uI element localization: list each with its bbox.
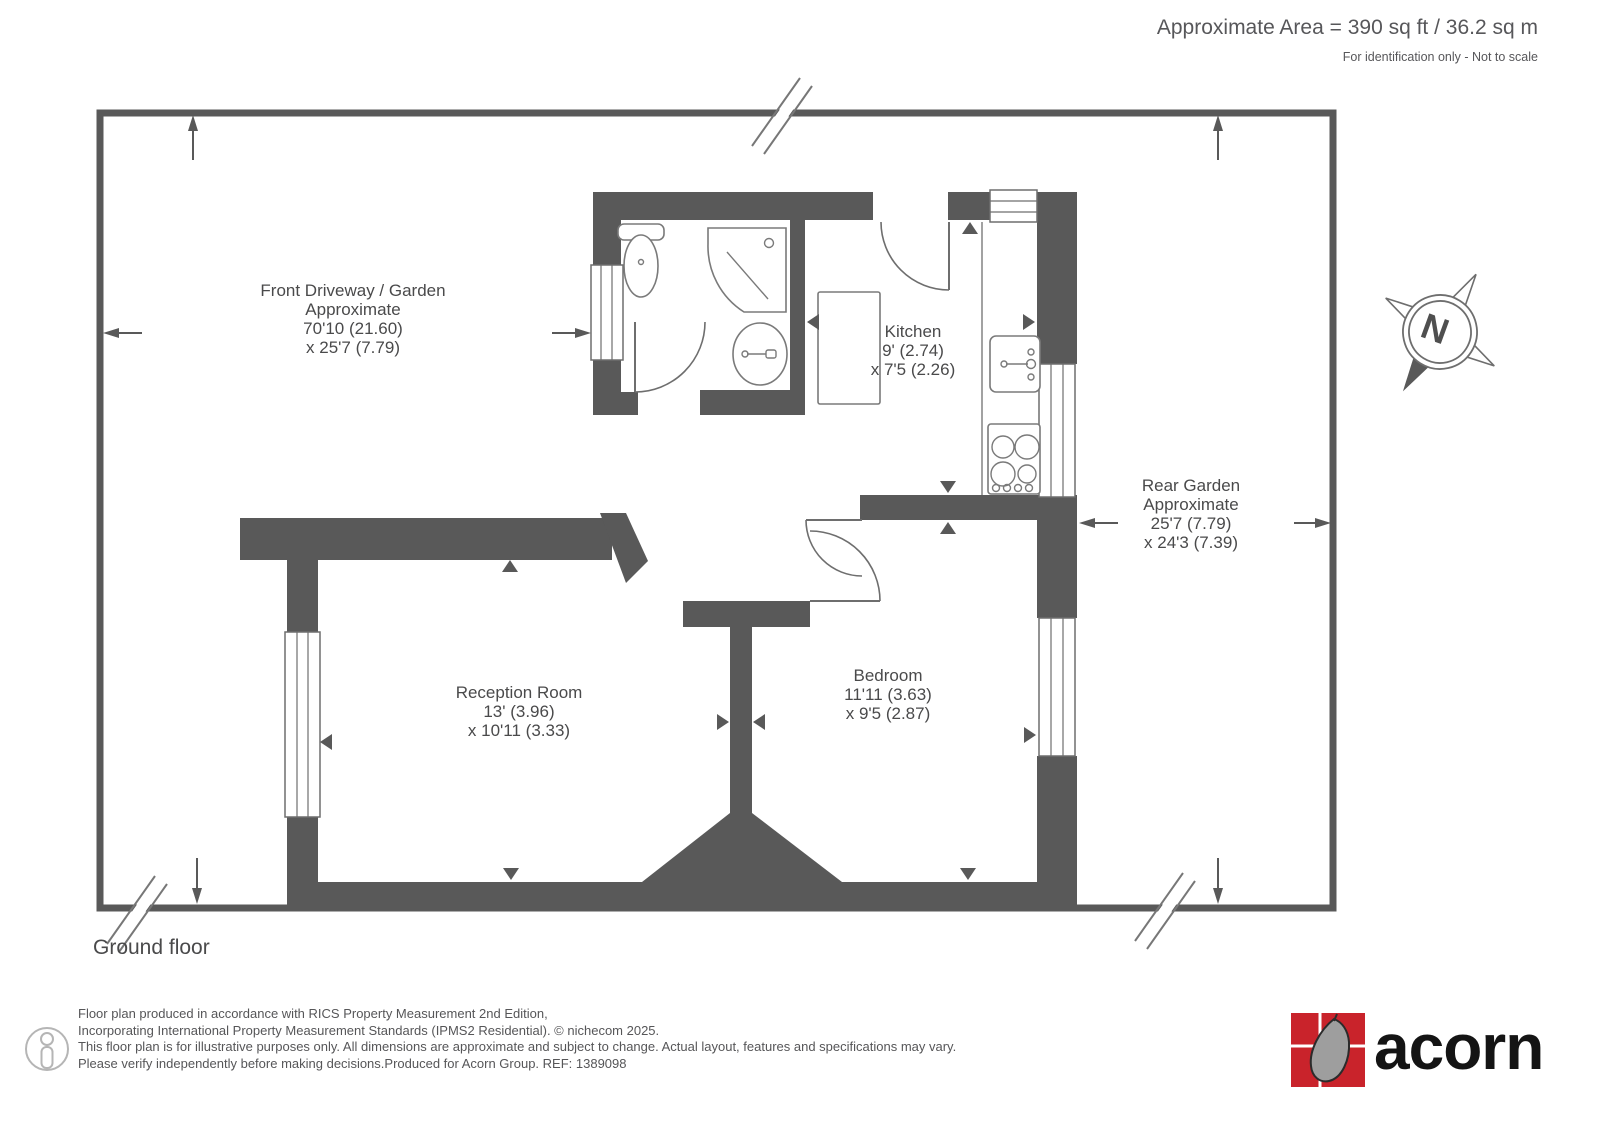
disclaimer-line: This floor plan is for illustrative purp… bbox=[78, 1039, 956, 1056]
kitchen-top-window bbox=[990, 190, 1037, 222]
reception-window bbox=[285, 632, 320, 817]
disclaimer-line: Incorporating International Property Mea… bbox=[78, 1023, 956, 1040]
label-line: Approximate bbox=[260, 300, 445, 319]
disclaimer-block: Floor plan produced in accordance with R… bbox=[78, 1006, 956, 1072]
person-icon bbox=[26, 1028, 68, 1070]
label-kitchen: Kitchen 9' (2.74) x 7'5 (2.26) bbox=[871, 322, 956, 379]
label-line: Rear Garden bbox=[1142, 476, 1240, 495]
label-line: Front Driveway / Garden bbox=[260, 281, 445, 300]
kitchen-back-door bbox=[881, 222, 949, 290]
basin-icon bbox=[733, 323, 787, 385]
disclaimer-line: Please verify independently before makin… bbox=[78, 1056, 956, 1073]
label-line: Approximate bbox=[1142, 495, 1240, 514]
bathroom-window bbox=[591, 265, 623, 360]
kitchen-hall-door bbox=[806, 520, 862, 576]
bedroom-door bbox=[810, 531, 880, 601]
label-line: 11'11 (3.63) bbox=[844, 685, 932, 704]
label-line: Bedroom bbox=[844, 666, 932, 685]
label-line: 25'7 (7.79) bbox=[1142, 514, 1240, 533]
hob-icon bbox=[988, 424, 1040, 494]
label-line: 70'10 (21.60) bbox=[260, 319, 445, 338]
identification-note: For identification only - Not to scale bbox=[1343, 50, 1538, 64]
label-line: Kitchen bbox=[871, 322, 956, 341]
label-reception-room: Reception Room 13' (3.96) x 10'11 (3.33) bbox=[456, 683, 583, 740]
label-line: x 10'11 (3.33) bbox=[456, 721, 583, 740]
label-line: x 25'7 (7.79) bbox=[260, 338, 445, 357]
label-front-garden: Front Driveway / Garden Approximate 70'1… bbox=[260, 281, 445, 357]
label-rear-garden: Rear Garden Approximate 25'7 (7.79) x 24… bbox=[1142, 476, 1240, 552]
label-line: x 9'5 (2.87) bbox=[844, 704, 932, 723]
label-line: 13' (3.96) bbox=[456, 702, 583, 721]
acorn-logo-icon bbox=[1291, 1013, 1365, 1087]
floorplan-page: Approximate Area = 390 sq ft / 36.2 sq m… bbox=[0, 0, 1600, 1131]
label-line: x 24'3 (7.39) bbox=[1142, 533, 1240, 552]
acorn-wordmark: acorn bbox=[1374, 1010, 1543, 1084]
floor-title: Ground floor bbox=[93, 936, 210, 960]
approximate-area-text: Approximate Area = 390 sq ft / 36.2 sq m bbox=[1157, 16, 1538, 40]
kitchen-sink-icon bbox=[990, 336, 1040, 392]
label-line: x 7'5 (2.26) bbox=[871, 360, 956, 379]
toilet-icon bbox=[618, 224, 664, 297]
bedroom-window bbox=[1039, 618, 1075, 756]
bathroom-door bbox=[635, 322, 705, 392]
label-bedroom: Bedroom 11'11 (3.63) x 9'5 (2.87) bbox=[844, 666, 932, 723]
disclaimer-line: Floor plan produced in accordance with R… bbox=[78, 1006, 956, 1023]
floorplan-drawing bbox=[0, 0, 1600, 1131]
shower-icon bbox=[708, 228, 786, 312]
label-line: 9' (2.74) bbox=[871, 341, 956, 360]
label-line: Reception Room bbox=[456, 683, 583, 702]
kitchen-side-window bbox=[1039, 364, 1075, 497]
